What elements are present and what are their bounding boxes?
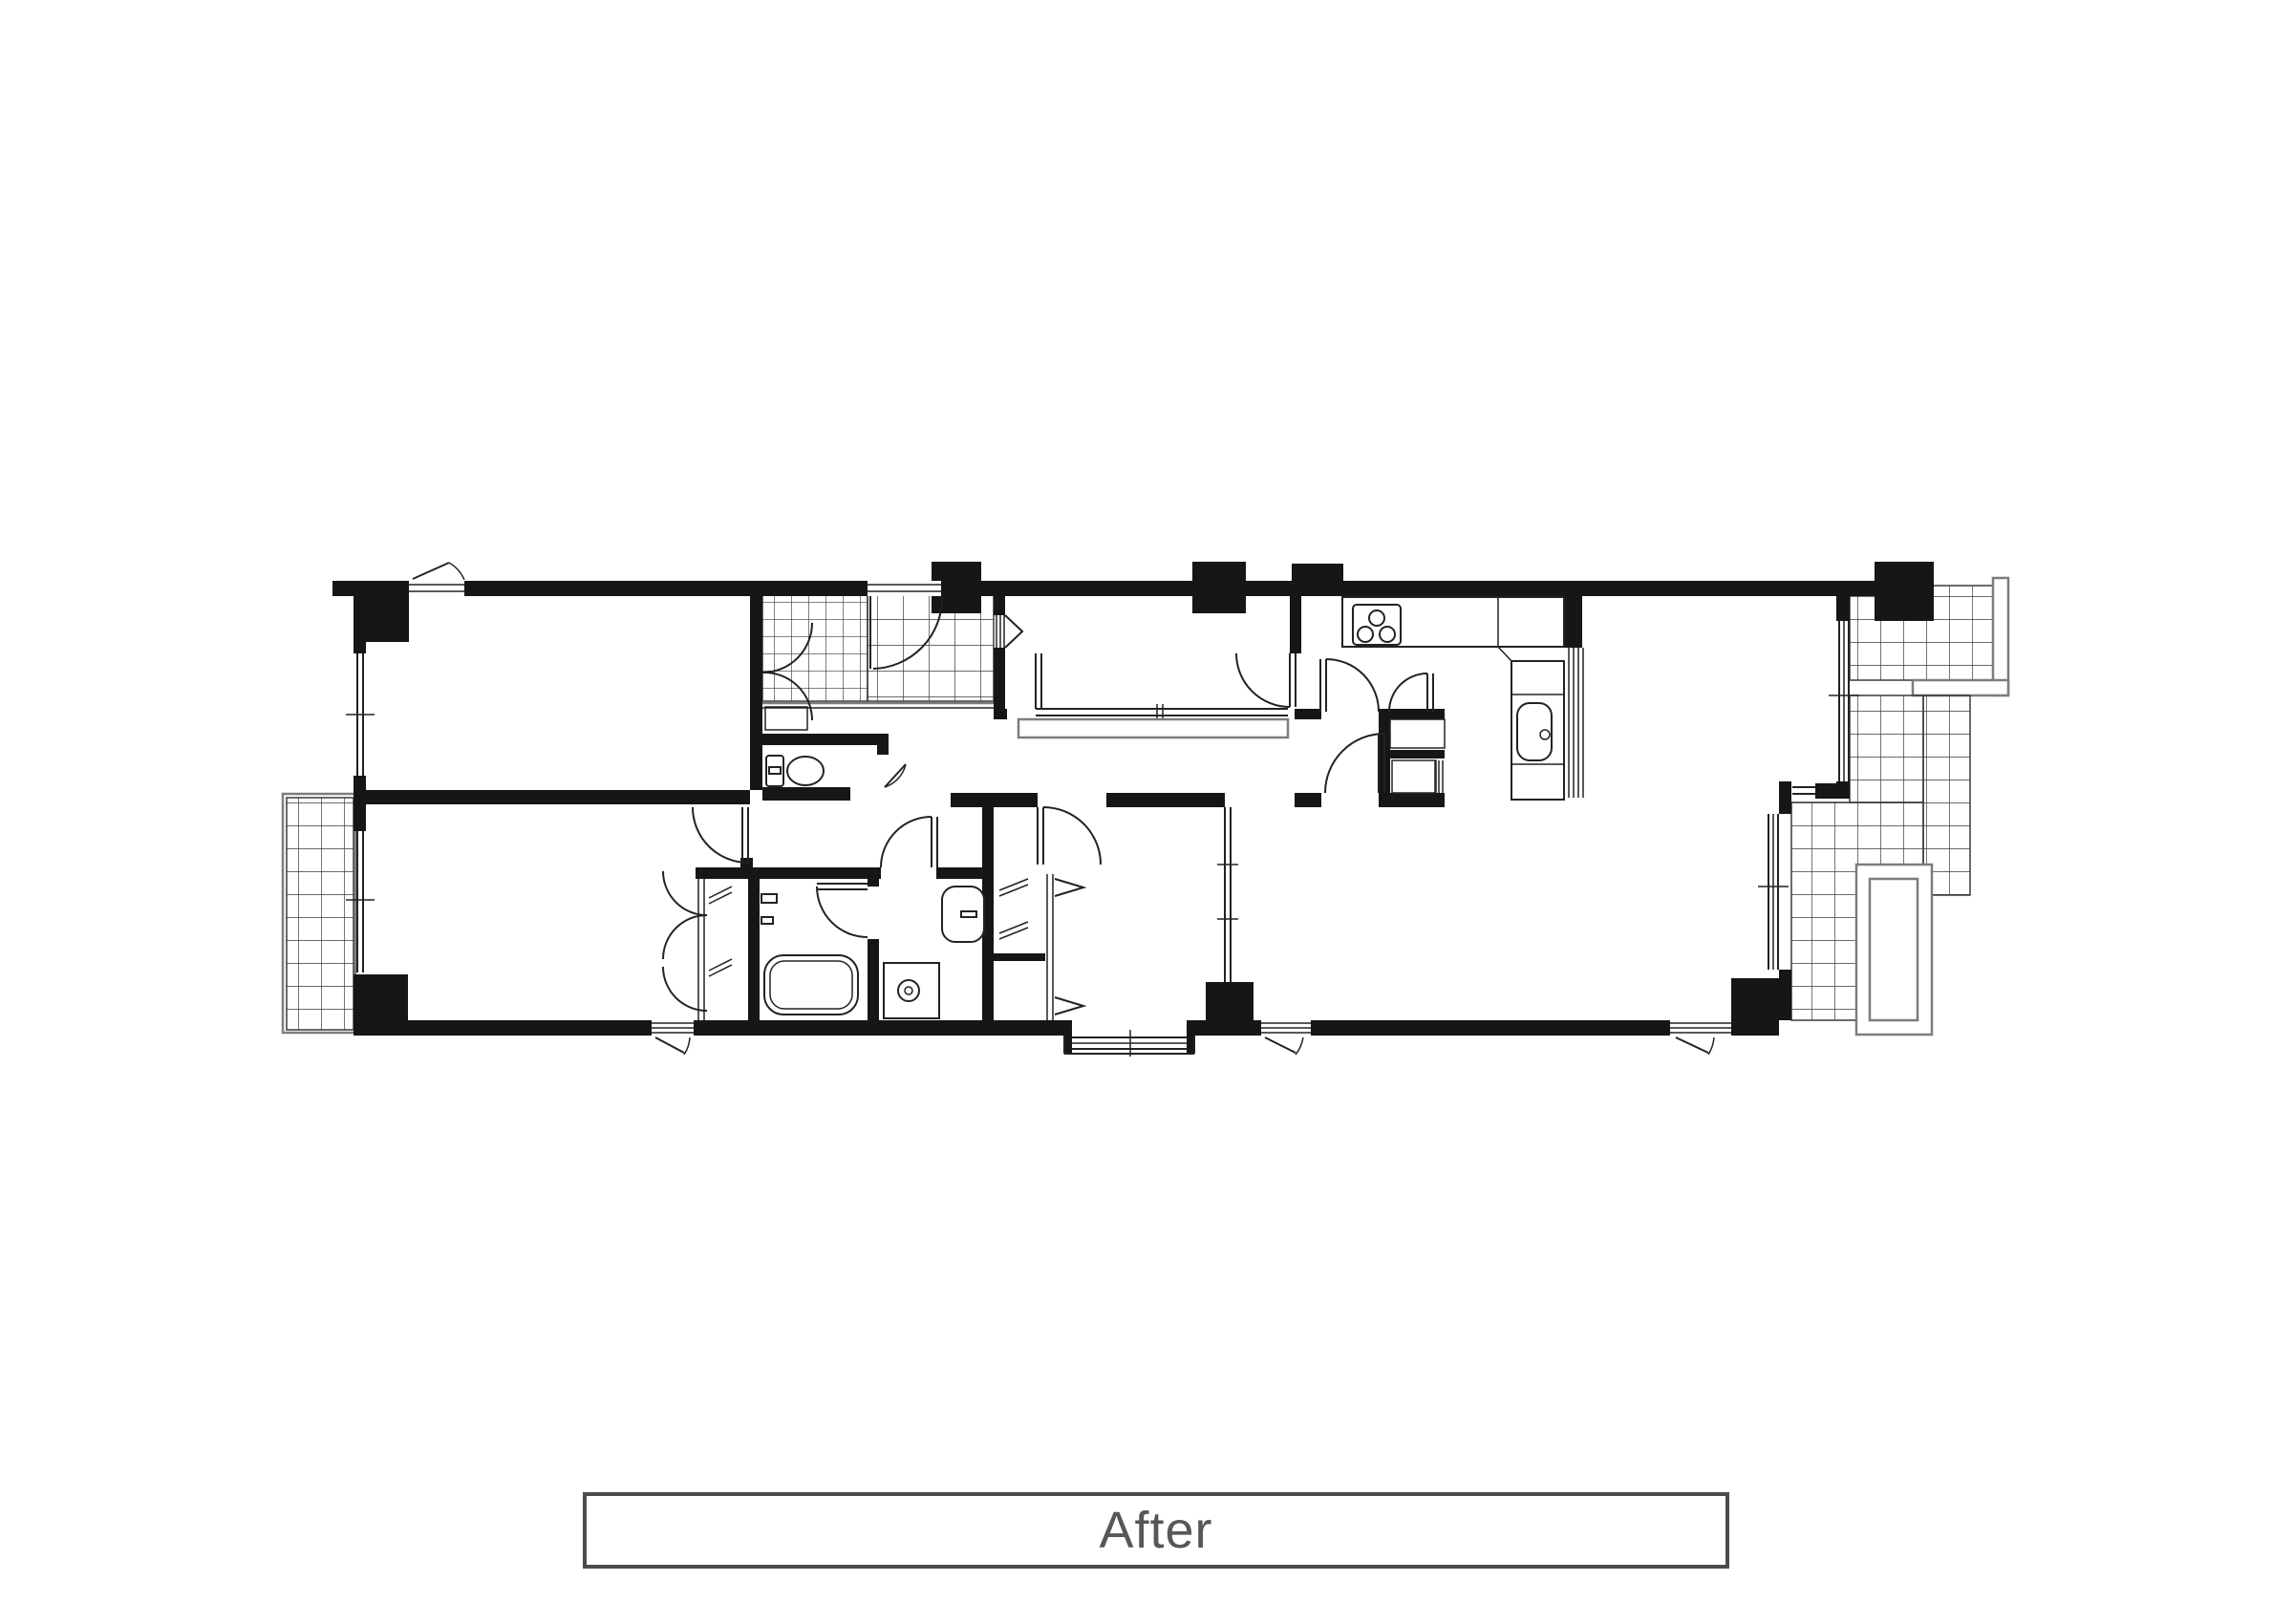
bedroom1-east-wall [750,594,762,790]
corner-window-pier-b [1779,781,1791,814]
column-top-3 [1292,564,1343,596]
corner-window-pier-a [1815,783,1836,799]
toilet-south-wall [762,787,850,801]
right-balcony-railing-band [1913,680,2008,695]
front-room-west-pier-bottom [994,648,1005,711]
bath-east-wall [868,939,879,1022]
windows [346,563,1859,1057]
top-wall [332,581,1877,596]
right-balcony-railing-east [1993,578,2008,695]
terrace-door-ldk-east [1670,1023,1731,1055]
ldk-north-wall-b [1379,793,1445,807]
east-wall-pier-bottom [1779,970,1791,1020]
left-wall-pier-2 [354,776,366,831]
linen-closet-doors [663,871,732,1020]
terrace-door-ldk-west [1261,1023,1311,1055]
after-caption-label: After [1099,1501,1212,1560]
divider-wall-left [366,790,750,804]
sanitary-north-wall-a [696,867,881,879]
toilet-north-wall [762,734,889,745]
walls [332,562,1934,1053]
kitchen-louver-panel [1569,648,1583,798]
bottom-wall-b [694,1020,1072,1036]
toilet-icon [765,707,824,786]
bathroom-door [817,884,868,937]
bedroom-center-door [1038,807,1101,865]
bath-west-wall [748,879,760,1022]
right-balcony-strip-tiles [1850,695,1923,802]
left-wall-pier-1 [354,640,366,653]
east-wall-pier-top [1836,594,1850,621]
bedroom-center-north-wall-b [1106,793,1225,807]
toilet-door [885,764,906,787]
floor-plan-page: After [0,0,2293,1624]
kitchen-door [1320,659,1379,712]
bifold-closet-doors [999,874,1083,1020]
service-door-top-left [409,563,464,596]
bottom-wall-a [408,1020,652,1036]
bath-east-wall-stub [868,879,879,887]
closet-divider [994,953,1045,961]
storage-upper-door [1389,673,1433,712]
east-wall-pier-mid [1836,781,1850,799]
bottom-wall-d [1311,1020,1670,1036]
front-room-east-pier [1290,594,1301,653]
kitchen-east-pier [1565,594,1582,648]
column-bottom-center [1206,982,1254,1036]
ldk-door [1325,734,1384,793]
column-top-right [1875,562,1934,621]
column-top-2 [1192,562,1246,613]
washing-machine-pan-icon [884,963,939,1018]
bay-window-bottom [1064,1030,1194,1057]
bay-stub-left [1064,1020,1072,1053]
terrace-door-bath [652,1023,694,1055]
front-room-sliding-partition [1018,653,1288,737]
floor-plan-drawing [0,0,2293,1624]
front-room-west-pier-top [994,594,1005,615]
washbasin-icon [942,887,984,942]
track-end-stub [994,709,1007,719]
kitchen-hall-wall-a [1295,709,1321,719]
storage-divider [1379,750,1445,759]
kitchen-sink-icon [1517,703,1552,760]
window-east-corner [1792,787,1815,794]
after-caption-box: After [583,1492,1729,1569]
kitchen-stove-3-burners-icon [1353,605,1401,645]
planter-box-icon [1856,865,1932,1035]
toilet-east-pier [877,734,889,755]
front-room-door [1236,653,1296,707]
column-bottom-left [354,974,408,1036]
window-bedroom1-left [346,653,375,776]
front-room-folding-door [996,615,1022,648]
window-east-lower [1758,814,1789,970]
washroom-door [881,817,937,867]
column-top-left [354,583,409,642]
column-bottom-right [1731,978,1779,1036]
bathtub-icon [761,894,858,1015]
bedroom-center-north-wall-a [994,793,1038,807]
bedroom-center-partition [1217,807,1238,982]
ldk-north-wall-a [1295,793,1321,807]
left-balcony-tiles [287,798,354,1030]
bedroom2-door [693,807,748,863]
entrance-tiles-fine [762,594,868,701]
